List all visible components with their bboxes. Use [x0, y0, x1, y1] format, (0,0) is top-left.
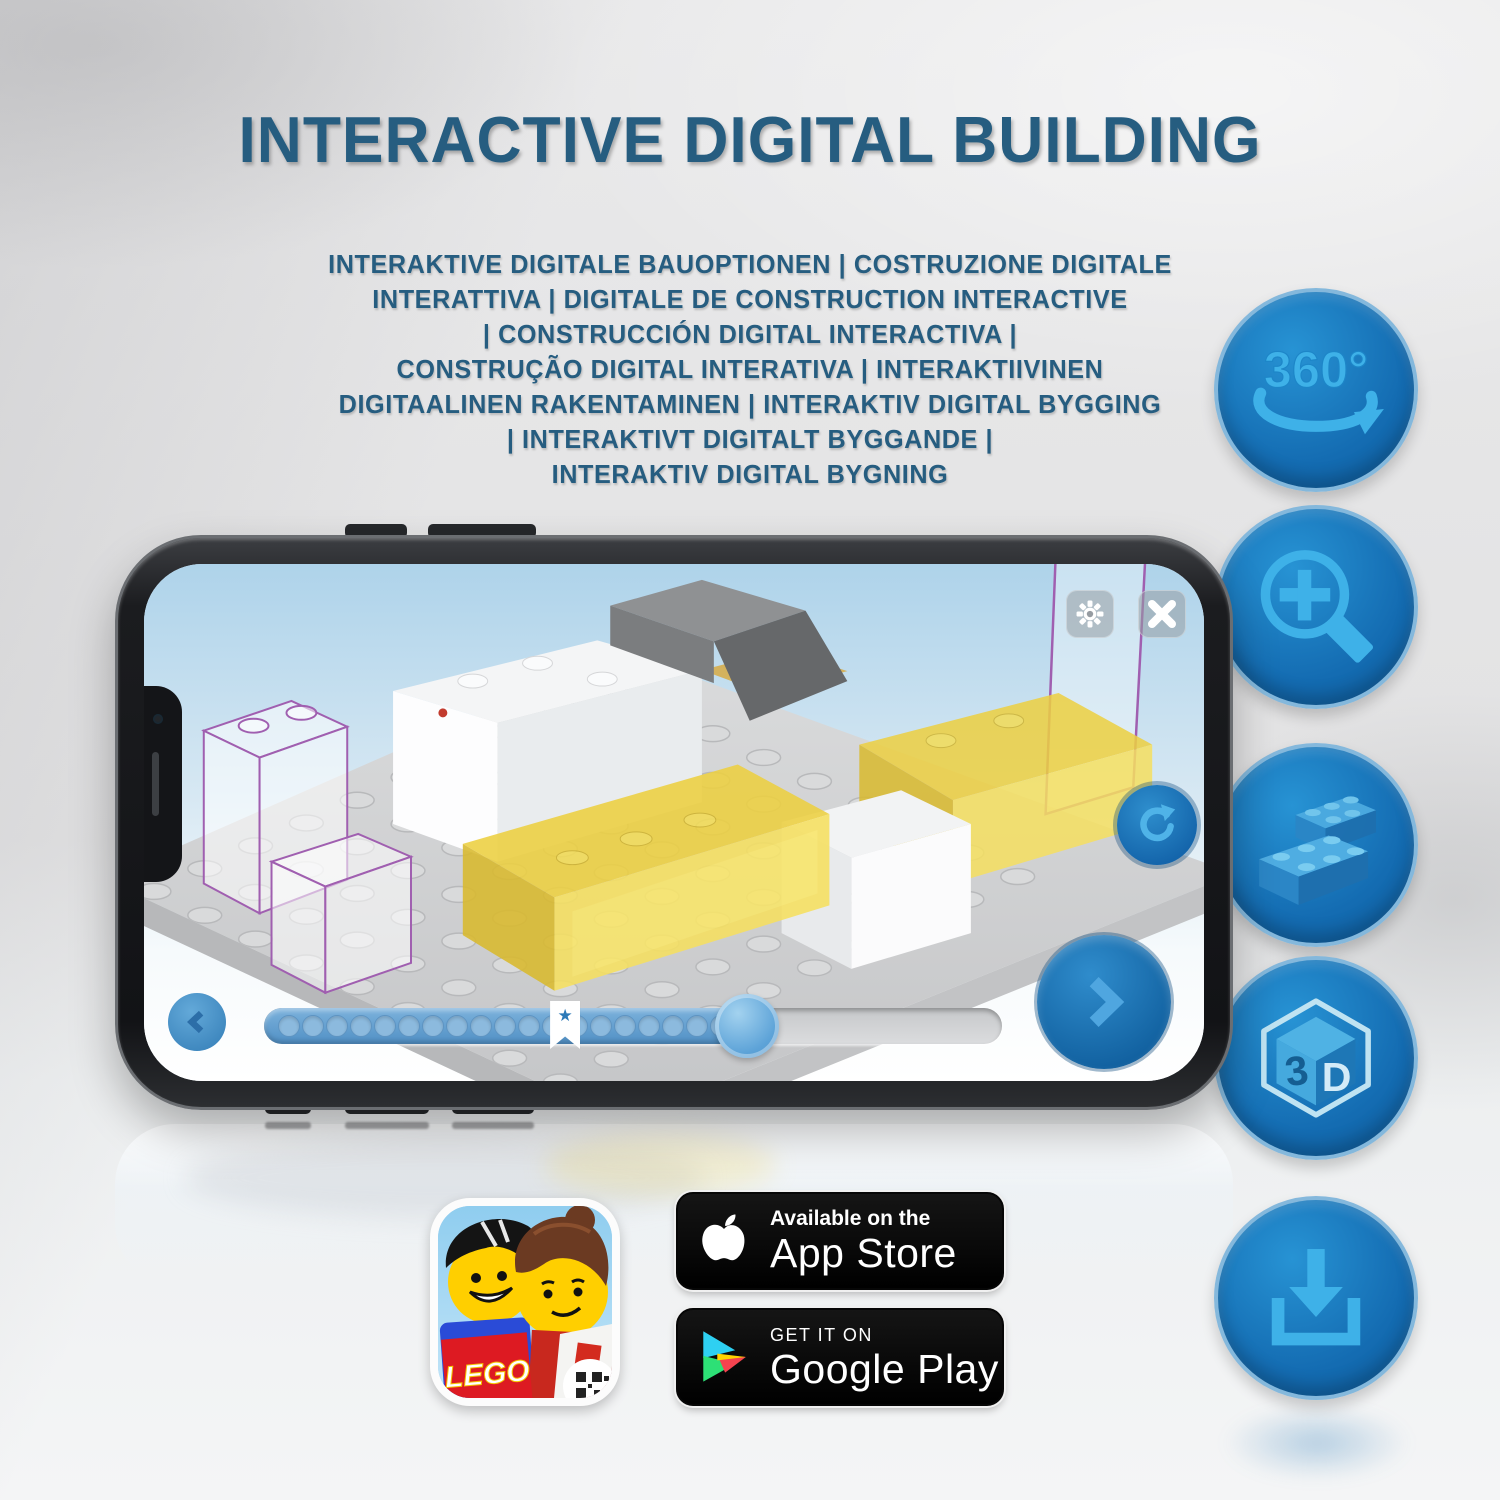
app-screen: ★	[144, 564, 1204, 1081]
feature-bricks	[1214, 743, 1418, 947]
previous-step-button[interactable]	[168, 993, 226, 1051]
subtitle-line: DIGITAALINEN RAKENTAMINEN | INTERAKTIV D…	[236, 387, 1264, 422]
google-play-tagline: GET IT ON	[770, 1323, 999, 1347]
phone-notch	[144, 686, 182, 882]
progress-dot	[446, 1015, 468, 1037]
close-button[interactable]	[1138, 590, 1186, 638]
subtitle-line: | INTERAKTIVT DIGITALT BYGGANDE |	[236, 422, 1264, 457]
progress-dot	[686, 1015, 708, 1037]
progress-dot	[326, 1015, 348, 1037]
feature-3d-view: 3 D	[1214, 956, 1418, 1160]
app-store-badge[interactable]: Available on the App Store	[676, 1192, 1004, 1290]
rotate-360-icon: 360°	[1237, 311, 1395, 469]
progress-dot	[614, 1015, 636, 1037]
phone-reflection	[115, 1124, 1233, 1284]
subtitle-line: CONSTRUÇÃO DIGITAL INTERATIVA | INTERAKT…	[236, 352, 1264, 387]
progress-dot	[590, 1015, 612, 1037]
feature-360-rotation: 360°	[1214, 288, 1418, 492]
progress-dot	[398, 1015, 420, 1037]
view-3d-icon: 3 D	[1237, 979, 1395, 1137]
progress-dot	[422, 1015, 444, 1037]
app-store-tagline: Available on the	[770, 1207, 957, 1231]
gear-icon	[1073, 597, 1107, 631]
progress-dot	[518, 1015, 540, 1037]
chevron-left-icon	[180, 1005, 214, 1039]
progress-fill	[264, 1008, 747, 1044]
poster: INTERACTIVE DIGITAL BUILDING INTERAKTIVE…	[0, 0, 1500, 1500]
lego-app-artwork: LEGO	[438, 1206, 612, 1398]
progress-dot	[278, 1015, 300, 1037]
progress-dot	[494, 1015, 516, 1037]
front-camera	[153, 714, 163, 724]
subtitle-line: | CONSTRUCCIÓN DIGITAL INTERACTIVA |	[236, 317, 1264, 352]
progress-dot	[638, 1015, 660, 1037]
next-step-button[interactable]	[1037, 935, 1171, 1069]
feature-download	[1214, 1196, 1418, 1400]
google-play-icon	[678, 1329, 770, 1385]
progress-dot	[374, 1015, 396, 1037]
subtitle-translations: INTERAKTIVE DIGITALE BAUOPTIONEN | COSTR…	[236, 247, 1264, 492]
subtitle-line: INTERAKTIVE DIGITALE BAUOPTIONEN | COSTR…	[236, 247, 1264, 282]
progress-dot	[470, 1015, 492, 1037]
page-title: INTERACTIVE DIGITAL BUILDING	[30, 102, 1470, 177]
google-play-name: Google Play	[770, 1347, 999, 1391]
settings-button[interactable]	[1066, 590, 1114, 638]
app-store-name: App Store	[770, 1231, 957, 1275]
progress-dot	[302, 1015, 324, 1037]
close-icon	[1147, 599, 1177, 629]
feature-zoom	[1214, 505, 1418, 709]
apple-icon	[678, 1210, 770, 1272]
brick-building-icon	[1237, 766, 1395, 924]
reset-view-button[interactable]	[1117, 785, 1197, 865]
rotate-clockwise-icon	[1131, 799, 1183, 851]
subtitle-line: INTERATTIVA | DIGITALE DE CONSTRUCTION I…	[236, 282, 1264, 317]
svg-text:D: D	[1322, 1054, 1352, 1100]
icon-reflection	[1224, 1406, 1410, 1480]
slider-handle[interactable]	[715, 994, 779, 1058]
lego-app-icon[interactable]: LEGO	[430, 1198, 620, 1406]
subtitle-line: INTERAKTIV DIGITAL BYGNING	[236, 457, 1264, 492]
build-progress-slider[interactable]: ★	[264, 1008, 1002, 1044]
progress-dot	[662, 1015, 684, 1037]
download-icon	[1237, 1219, 1395, 1377]
speaker-slot	[152, 752, 159, 816]
progress-dot	[350, 1015, 372, 1037]
phone-mockup: ★	[115, 535, 1233, 1110]
google-play-badge[interactable]: GET IT ON Google Play	[676, 1308, 1004, 1406]
chevron-right-icon	[1065, 963, 1143, 1041]
svg-text:360°: 360°	[1264, 341, 1369, 398]
zoom-in-icon	[1237, 528, 1395, 686]
